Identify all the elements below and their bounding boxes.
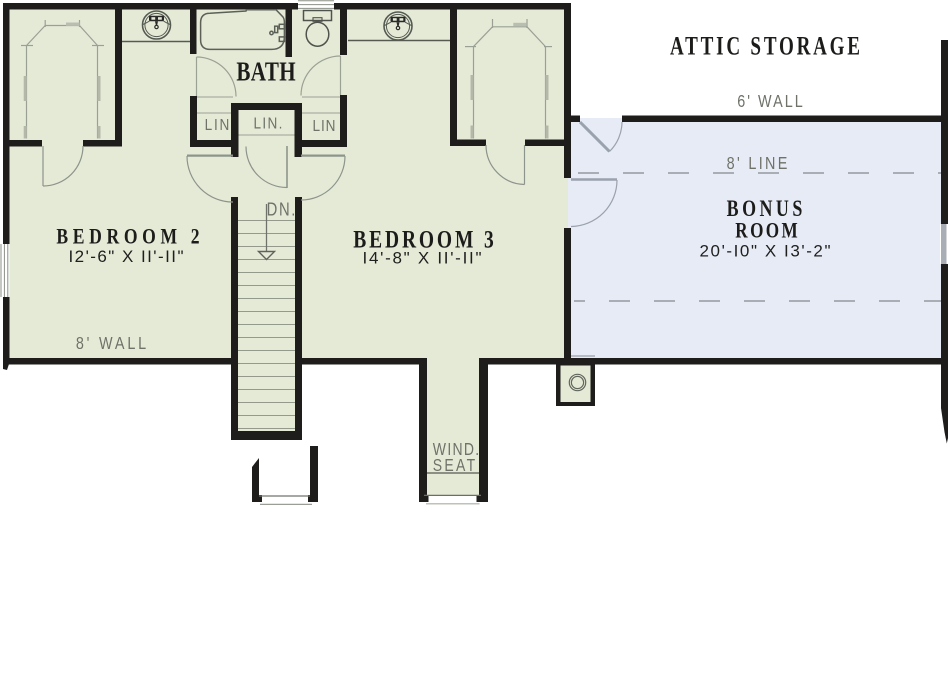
svg-text:ROOM: ROOM [735, 218, 798, 243]
svg-text:I4'-8" X II'-II": I4'-8" X II'-II" [363, 248, 482, 267]
svg-text:I2'-6" X II'-II": I2'-6" X II'-II" [69, 247, 184, 266]
svg-text:DN.: DN. [267, 199, 296, 220]
svg-text:LIN: LIN [313, 118, 336, 135]
svg-text:LIN: LIN [205, 117, 230, 134]
svg-text:BATH: BATH [236, 57, 295, 87]
svg-text:LIN.: LIN. [254, 116, 283, 133]
svg-text:20'-I0" X I3'-2": 20'-I0" X I3'-2" [700, 242, 831, 261]
